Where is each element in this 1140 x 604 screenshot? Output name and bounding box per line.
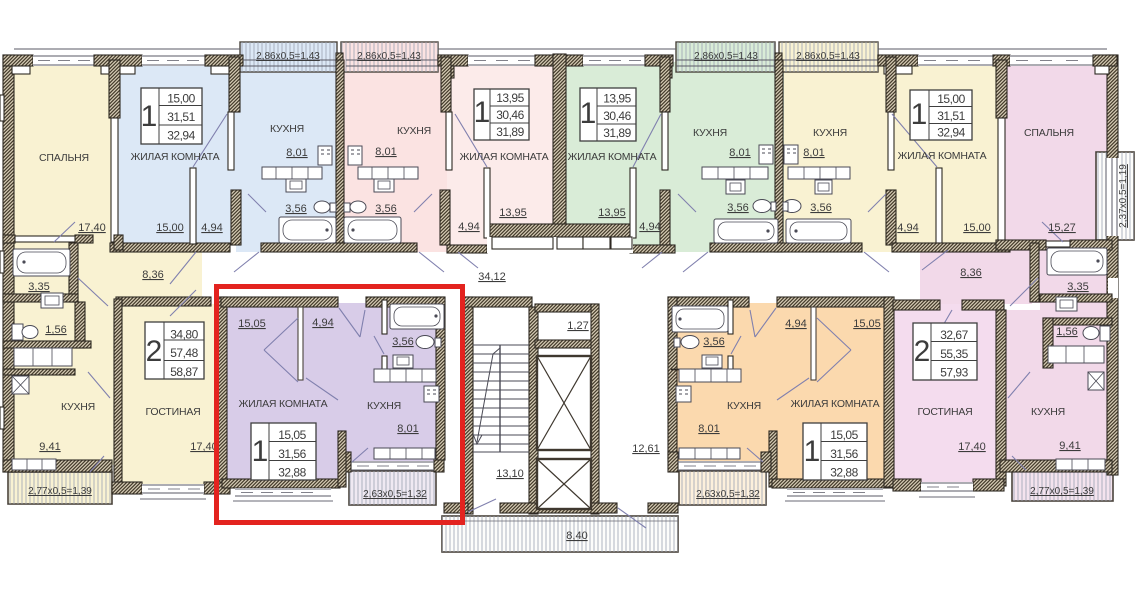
svg-text:3,56: 3,56 [810,202,831,214]
svg-text:2,37х0,5=1,19: 2,37х0,5=1,19 [1118,164,1129,228]
svg-text:ЖИЛАЯ КОМНАТА: ЖИЛАЯ КОМНАТА [239,398,328,410]
svg-text:1,27: 1,27 [567,320,588,332]
svg-text:2,86х0,5=1,43: 2,86х0,5=1,43 [256,51,320,62]
svg-text:9,41: 9,41 [39,441,60,453]
svg-text:15,00: 15,00 [167,92,195,106]
svg-text:3,35: 3,35 [28,281,49,293]
svg-text:15,05: 15,05 [278,428,306,442]
svg-text:4,94: 4,94 [639,221,660,233]
svg-text:15,05: 15,05 [853,318,881,330]
svg-text:32,88: 32,88 [278,466,306,480]
svg-text:13,95: 13,95 [598,207,626,219]
svg-text:15,00: 15,00 [963,222,991,234]
svg-text:КУХНЯ: КУХНЯ [1031,406,1065,418]
svg-text:15,00: 15,00 [937,92,965,106]
svg-text:17,40: 17,40 [190,441,218,453]
svg-text:34,80: 34,80 [170,328,198,342]
svg-text:3,56: 3,56 [375,203,396,215]
svg-text:15,00: 15,00 [156,222,184,234]
svg-text:ГОСТИНАЯ: ГОСТИНАЯ [917,406,972,418]
svg-text:8,01: 8,01 [375,146,396,158]
svg-text:8,36: 8,36 [960,267,981,279]
svg-text:58,87: 58,87 [170,365,198,379]
svg-text:15,05: 15,05 [238,318,266,330]
svg-text:17,40: 17,40 [78,222,106,234]
svg-text:2,63х0,5=1,32: 2,63х0,5=1,32 [363,489,427,500]
svg-text:13,95: 13,95 [603,92,631,106]
svg-text:ГОСТИНАЯ: ГОСТИНАЯ [145,406,200,418]
svg-text:ЖИЛАЯ КОМНАТА: ЖИЛАЯ КОМНАТА [791,398,880,410]
svg-text:1: 1 [580,97,597,130]
svg-text:32,88: 32,88 [830,466,858,480]
svg-text:30,46: 30,46 [603,109,631,123]
svg-text:1,56: 1,56 [1056,326,1077,338]
svg-text:4,94: 4,94 [785,318,806,330]
svg-text:57,48: 57,48 [170,346,198,360]
svg-text:2,86х0,5=1,43: 2,86х0,5=1,43 [357,51,421,62]
svg-text:15,05: 15,05 [830,428,858,442]
svg-text:КУХНЯ: КУХНЯ [270,123,304,135]
svg-text:31,56: 31,56 [278,447,306,461]
svg-text:КУХНЯ: КУХНЯ [727,400,761,412]
svg-text:32,67: 32,67 [940,328,968,342]
svg-text:31,89: 31,89 [603,126,631,140]
svg-text:2,86х0,5=1,43: 2,86х0,5=1,43 [694,51,758,62]
svg-text:1,56: 1,56 [45,324,66,336]
svg-text:8,01: 8,01 [803,147,824,159]
svg-text:31,51: 31,51 [937,109,965,123]
svg-text:3,56: 3,56 [727,202,748,214]
svg-text:СПАЛЬНЯ: СПАЛЬНЯ [39,152,89,164]
svg-text:1: 1 [252,435,269,468]
svg-text:9,41: 9,41 [1059,440,1080,452]
svg-text:2,77х0,5=1,39: 2,77х0,5=1,39 [1030,486,1094,497]
svg-text:13,95: 13,95 [499,207,527,219]
svg-text:8,01: 8,01 [729,147,750,159]
svg-text:1: 1 [474,96,491,129]
svg-text:31,56: 31,56 [830,447,858,461]
svg-text:КУХНЯ: КУХНЯ [813,127,847,139]
svg-text:34,12: 34,12 [478,271,506,283]
svg-text:31,51: 31,51 [167,110,195,124]
svg-text:15,27: 15,27 [1048,222,1076,234]
svg-text:2: 2 [914,335,931,368]
svg-text:3,56: 3,56 [703,336,724,348]
svg-text:13,10: 13,10 [496,468,524,480]
svg-text:КУХНЯ: КУХНЯ [367,400,401,412]
svg-text:57,93: 57,93 [940,366,968,380]
svg-text:4,94: 4,94 [312,317,333,329]
svg-text:32,94: 32,94 [167,129,195,143]
svg-text:30,46: 30,46 [496,108,524,122]
svg-text:1: 1 [911,98,928,131]
svg-text:3,35: 3,35 [1067,281,1088,293]
svg-text:8,01: 8,01 [698,423,719,435]
svg-text:ЖИЛАЯ КОМНАТА: ЖИЛАЯ КОМНАТА [568,151,657,163]
svg-text:3,56: 3,56 [285,203,306,215]
svg-text:СПАЛЬНЯ: СПАЛЬНЯ [1024,127,1074,139]
svg-text:КУХНЯ: КУХНЯ [397,125,431,137]
svg-text:4,94: 4,94 [458,221,479,233]
svg-text:8,01: 8,01 [286,147,307,159]
svg-text:2,63х0,5=1,32: 2,63х0,5=1,32 [696,489,760,500]
svg-text:КУХНЯ: КУХНЯ [61,401,95,413]
svg-text:КУХНЯ: КУХНЯ [693,127,727,139]
svg-text:4,94: 4,94 [201,222,222,234]
svg-text:17,40: 17,40 [958,441,986,453]
svg-text:1: 1 [804,435,821,468]
svg-text:2,86х0,5=1,43: 2,86х0,5=1,43 [796,51,860,62]
svg-text:13,95: 13,95 [496,91,524,105]
svg-text:2: 2 [146,335,163,368]
svg-text:8,36: 8,36 [142,269,163,281]
svg-text:32,94: 32,94 [937,126,965,140]
svg-text:55,35: 55,35 [940,347,968,361]
svg-text:ЖИЛАЯ КОМНАТА: ЖИЛАЯ КОМНАТА [460,151,549,163]
svg-text:ЖИЛАЯ КОМНАТА: ЖИЛАЯ КОМНАТА [131,151,220,163]
svg-text:ЖИЛАЯ КОМНАТА: ЖИЛАЯ КОМНАТА [898,150,987,162]
svg-text:4,94: 4,94 [897,222,918,234]
svg-text:8,01: 8,01 [397,423,418,435]
svg-text:2,77х0,5=1,39: 2,77х0,5=1,39 [28,486,92,497]
svg-text:31,89: 31,89 [496,125,524,139]
svg-text:12,61: 12,61 [632,443,660,455]
svg-text:8,40: 8,40 [566,530,587,542]
svg-text:3,56: 3,56 [392,336,413,348]
svg-text:1: 1 [141,100,158,133]
